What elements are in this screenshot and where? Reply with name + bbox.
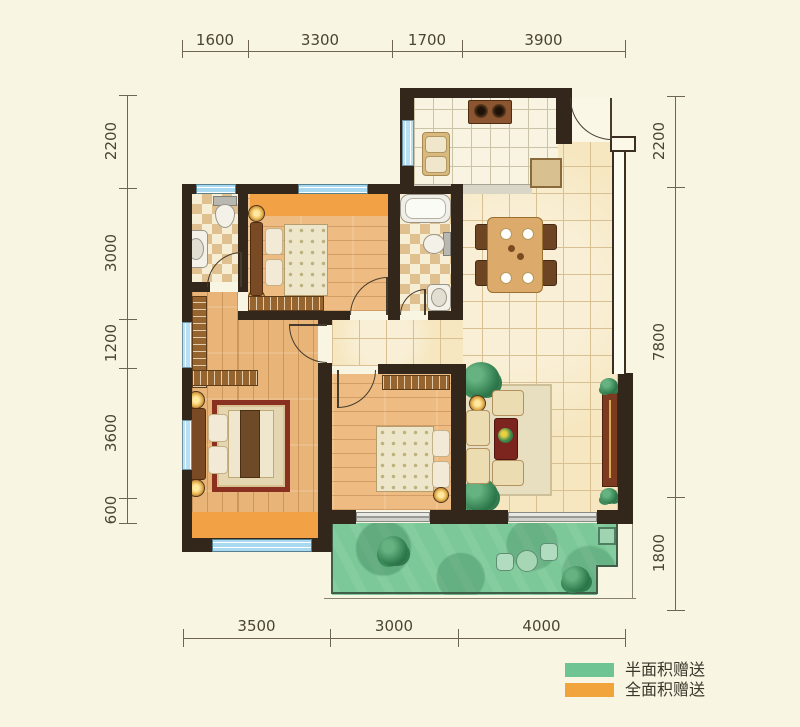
pillow bbox=[208, 414, 228, 442]
wall bbox=[400, 88, 572, 98]
wall bbox=[597, 510, 633, 524]
dining-chair bbox=[541, 224, 557, 250]
tv-cabinet-trim bbox=[609, 400, 611, 478]
wall bbox=[388, 184, 400, 320]
balcony-stool bbox=[496, 553, 514, 571]
dim-line-right bbox=[675, 96, 676, 610]
wall bbox=[318, 311, 332, 325]
dim-left-4: 3600 bbox=[102, 403, 120, 463]
table-decor bbox=[517, 253, 524, 260]
wall-pillar bbox=[610, 136, 636, 152]
pillow bbox=[208, 446, 228, 474]
balcony-outline-notch-v bbox=[596, 567, 598, 594]
bathroom1-door-leaf bbox=[240, 252, 242, 287]
balcony-notch bbox=[597, 567, 618, 595]
window-master-bottom bbox=[212, 539, 312, 552]
dim-right-3: 1800 bbox=[650, 523, 668, 583]
dim-line-bottom bbox=[183, 638, 625, 639]
balcony-outline-right bbox=[616, 523, 618, 567]
legend-swatch-full-gift bbox=[565, 683, 614, 697]
dim-tick bbox=[119, 498, 137, 499]
armchair bbox=[492, 460, 524, 486]
dim-tick bbox=[119, 368, 137, 369]
wardrobe bbox=[248, 296, 324, 311]
wall bbox=[556, 88, 572, 144]
floor-lamp bbox=[470, 396, 485, 411]
wall bbox=[430, 510, 508, 524]
wall bbox=[318, 510, 356, 524]
window-kitchen bbox=[402, 120, 414, 166]
balcony-outline-notch-h bbox=[596, 565, 618, 567]
dim-tick bbox=[625, 629, 626, 647]
wall bbox=[182, 184, 192, 552]
bed-mattress bbox=[284, 224, 328, 296]
balcony-table bbox=[516, 550, 538, 572]
balcony-plant-icon bbox=[378, 536, 408, 566]
wall bbox=[618, 373, 633, 523]
balcony-stool bbox=[540, 543, 558, 561]
wall bbox=[182, 282, 210, 292]
bed-mattress bbox=[376, 426, 434, 492]
legend-label-half-gift: 半面积赠送 bbox=[625, 661, 745, 679]
balcony-drain bbox=[598, 527, 616, 545]
dim-left-3: 1200 bbox=[102, 313, 120, 373]
wardrobe bbox=[382, 375, 450, 390]
bedside-lamp bbox=[434, 488, 448, 502]
window-master-left-upper bbox=[182, 322, 192, 368]
bed-headboard bbox=[190, 408, 206, 480]
wall bbox=[451, 364, 466, 518]
stove-burner bbox=[474, 104, 488, 118]
window-bedroom2 bbox=[298, 184, 368, 194]
wardrobe bbox=[192, 370, 258, 386]
sliding-door-bedroom3-balcony bbox=[356, 512, 430, 522]
dim-tick bbox=[625, 40, 626, 58]
exterior-boundary-bottom bbox=[324, 598, 636, 599]
legend-swatch-half-gift bbox=[565, 663, 614, 677]
bathtub-inner bbox=[405, 198, 446, 219]
dim-tick bbox=[667, 96, 685, 97]
dim-bottom-1: 3500 bbox=[183, 617, 330, 635]
balcony-outline-bottom bbox=[331, 592, 598, 594]
kitchen-sink-basin bbox=[425, 156, 447, 173]
full-gift-area-master bbox=[192, 512, 318, 538]
table-decor bbox=[508, 245, 515, 252]
bedroom2-door-leaf bbox=[386, 277, 388, 315]
plate bbox=[522, 228, 534, 240]
dim-line-left bbox=[127, 95, 128, 523]
plate bbox=[500, 272, 512, 284]
tv-plant-icon bbox=[600, 378, 618, 394]
dim-tick bbox=[667, 187, 685, 188]
sofa-cushion bbox=[466, 410, 490, 446]
dim-top-2: 3300 bbox=[248, 31, 392, 49]
dim-top-1: 1600 bbox=[182, 31, 248, 49]
toilet-icon bbox=[423, 234, 445, 254]
dining-chair bbox=[541, 260, 557, 286]
pillow bbox=[432, 430, 450, 457]
bathroom2-door-leaf bbox=[424, 289, 426, 315]
sink-basin bbox=[431, 288, 447, 307]
bed-runner bbox=[240, 410, 260, 478]
pillow bbox=[265, 259, 283, 286]
master-door-leaf bbox=[289, 324, 327, 326]
dining-table bbox=[487, 217, 543, 293]
dim-left-5: 600 bbox=[102, 480, 120, 540]
dim-top-3: 1700 bbox=[392, 31, 462, 49]
dim-tick bbox=[667, 497, 685, 498]
balcony-plant-icon bbox=[562, 566, 590, 592]
bedroom3-door-leaf bbox=[337, 370, 339, 408]
dim-left-2: 3000 bbox=[102, 223, 120, 283]
dim-top-4: 3900 bbox=[462, 31, 625, 49]
dim-tick bbox=[119, 95, 137, 96]
legend-label-full-gift: 全面积赠送 bbox=[625, 681, 745, 699]
window-master-left-lower bbox=[182, 420, 192, 470]
glass-wall bbox=[612, 150, 626, 374]
fridge-icon bbox=[530, 158, 562, 188]
pillow bbox=[265, 228, 283, 255]
bedside-lamp bbox=[249, 206, 264, 221]
plate bbox=[522, 272, 534, 284]
bed-headboard bbox=[250, 222, 263, 296]
dim-bottom-2: 3000 bbox=[330, 617, 458, 635]
dim-tick bbox=[667, 610, 685, 611]
stove-burner bbox=[492, 104, 506, 118]
entry-door-leaf bbox=[610, 98, 612, 140]
wall bbox=[238, 311, 350, 320]
floor-hallway bbox=[332, 320, 463, 366]
dim-tick bbox=[119, 319, 137, 320]
sofa-cushion bbox=[466, 448, 490, 484]
sliding-door-living-balcony bbox=[508, 512, 597, 522]
flower-bouquet bbox=[498, 428, 513, 443]
dim-left-1: 2200 bbox=[102, 111, 120, 171]
armchair bbox=[492, 390, 524, 416]
dim-right-1: 2200 bbox=[650, 111, 668, 171]
pillow bbox=[432, 461, 450, 488]
full-gift-area-bedroom-2 bbox=[250, 194, 388, 216]
dim-right-2: 7800 bbox=[650, 312, 668, 372]
dim-tick bbox=[119, 188, 137, 189]
dim-tick bbox=[119, 523, 137, 524]
plate bbox=[500, 228, 512, 240]
tv-plant-icon bbox=[600, 488, 618, 504]
floor-plan-canvas: 1600 3300 1700 3900 2200 3000 1200 3600 … bbox=[0, 0, 800, 727]
wall bbox=[451, 184, 463, 320]
wall bbox=[400, 186, 451, 194]
dim-bottom-3: 4000 bbox=[458, 617, 625, 635]
kitchen-sink-basin bbox=[425, 136, 447, 153]
window-bathroom1 bbox=[196, 184, 236, 194]
